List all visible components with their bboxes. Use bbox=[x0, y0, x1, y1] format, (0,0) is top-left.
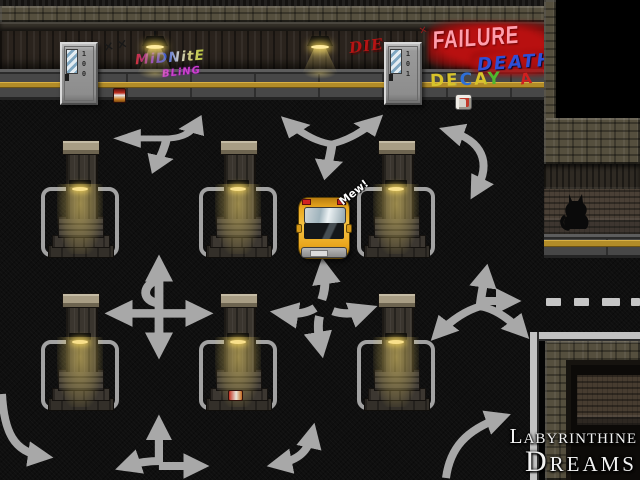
road-arrow-two-way-bottom bbox=[262, 410, 356, 480]
pillar-base bbox=[374, 369, 420, 391]
soda-can bbox=[113, 88, 126, 103]
wall-lamp bbox=[307, 36, 333, 80]
pillar-lamp-icon bbox=[385, 180, 407, 187]
lamp-pillar bbox=[35, 140, 125, 258]
yellow-curb-line bbox=[544, 240, 640, 247]
taxi-rear-window bbox=[304, 207, 346, 224]
trash-crumpled bbox=[455, 94, 472, 110]
right-wall-stone-edge bbox=[544, 0, 556, 130]
graffiti-failure: FAILURE bbox=[433, 20, 520, 55]
pillar-lamp-light bbox=[72, 340, 88, 344]
lamp-pillar bbox=[193, 140, 283, 258]
pillar-lamp-light bbox=[230, 340, 246, 344]
door-handle bbox=[389, 74, 393, 81]
pillar-cap bbox=[220, 293, 258, 308]
pillar-lamp-icon bbox=[69, 333, 91, 340]
door-window bbox=[390, 49, 402, 74]
road-dash bbox=[546, 298, 561, 306]
road-arrow-east bbox=[474, 285, 532, 317]
pillar-lamp-icon bbox=[227, 180, 249, 187]
room-back-wall bbox=[577, 375, 640, 425]
soda-can bbox=[228, 390, 243, 401]
door-number: 101 bbox=[404, 50, 412, 80]
right-building-ledge bbox=[544, 164, 640, 189]
taxi-mirror bbox=[346, 224, 352, 233]
lamp-light-spot bbox=[304, 68, 336, 79]
door-101[interactable]: 101 bbox=[384, 42, 422, 105]
pillar-base bbox=[216, 369, 262, 391]
pillar-lamp-light bbox=[388, 187, 404, 191]
taxi-taillight bbox=[302, 199, 311, 205]
dark-alley-void bbox=[556, 0, 640, 118]
lamp-light-spot bbox=[139, 68, 171, 79]
lamp-pillar bbox=[35, 293, 125, 411]
graffiti-decay: DECAY bbox=[430, 69, 503, 92]
game-viewport[interactable]: Mew! ×× MiDNitE BLiNG DIE × FAILURE DEAT… bbox=[0, 0, 640, 480]
door-number: 100 bbox=[80, 50, 88, 80]
pillar-base bbox=[58, 216, 104, 238]
taxi-license-plate bbox=[310, 250, 328, 257]
pillar-cap bbox=[378, 140, 416, 155]
lamp-pillar bbox=[351, 293, 441, 411]
wall-lamp bbox=[142, 36, 168, 80]
pillar-base bbox=[374, 216, 420, 238]
pillar-cap bbox=[62, 293, 100, 308]
pillar-cap bbox=[62, 140, 100, 155]
road-dash bbox=[602, 298, 620, 306]
door-window bbox=[66, 49, 78, 74]
pillar-base bbox=[216, 216, 262, 238]
road-dash bbox=[574, 298, 589, 306]
right-building-stone-band bbox=[544, 118, 640, 164]
logo-line-2: Dreams bbox=[510, 447, 637, 478]
pillar-lamp-icon bbox=[385, 333, 407, 340]
lamp-pillar bbox=[351, 140, 441, 258]
taxi-mirror bbox=[296, 224, 302, 233]
sidewalk-right bbox=[544, 234, 640, 258]
game-logo: Labyrinthine Dreams bbox=[510, 426, 637, 478]
road-arrow-three-way-bottom bbox=[112, 414, 214, 480]
pillar-lamp-icon bbox=[227, 333, 249, 340]
pillar-base bbox=[58, 369, 104, 391]
pillar-cap bbox=[220, 140, 258, 155]
door-handle bbox=[65, 74, 69, 81]
logo-line-1: Labyrinthine bbox=[510, 426, 637, 447]
pillar-lamp-icon bbox=[69, 180, 91, 187]
top-wall-stone-band bbox=[0, 6, 556, 22]
pillar-lamp-light bbox=[72, 187, 88, 191]
pillar-cap bbox=[378, 293, 416, 308]
cat-silhouette-icon[interactable] bbox=[556, 190, 592, 234]
door-100[interactable]: 100 bbox=[60, 42, 98, 105]
pillar-lamp-light bbox=[388, 340, 404, 344]
road-dash bbox=[631, 298, 640, 306]
bottom-building-curb-outline-h bbox=[532, 332, 640, 341]
pillar-lamp-light bbox=[230, 187, 246, 191]
taxi-windshield bbox=[304, 223, 344, 239]
